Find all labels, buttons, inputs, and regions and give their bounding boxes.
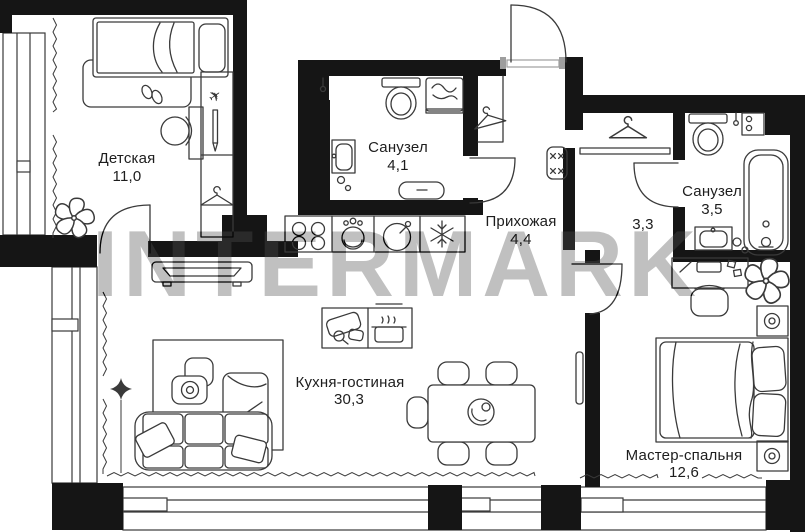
room-label-detskaya: Детская (99, 150, 156, 167)
kitchen-island (322, 304, 412, 348)
desk-chair-icon (161, 117, 192, 145)
kitchen-counter (285, 216, 465, 252)
room-area-kitchen: 30,3 (334, 391, 364, 408)
curtain-zigzag (103, 292, 107, 376)
room-area-master: 12,6 (669, 464, 699, 481)
wall-niche (329, 76, 366, 100)
plant-icon (744, 256, 792, 306)
furniture-master-spalnya (656, 256, 792, 471)
furniture-prihozhaya (470, 76, 567, 179)
armchair-icon (172, 376, 207, 404)
pillow (752, 346, 787, 392)
toy-plane-icon: ✈ (205, 85, 226, 107)
door-sanuzel-2 (634, 163, 678, 207)
floor-zigzag (107, 473, 535, 477)
toilet-icon (382, 78, 420, 119)
room-label-sanuzel-2: Санузел (682, 183, 742, 200)
dining-chair (438, 362, 469, 385)
floor-plan-svg: ✈ (0, 0, 805, 532)
floor-plan: ✈ (0, 0, 805, 532)
entrance-door (500, 5, 566, 69)
bathroom-sink-icon (332, 140, 355, 191)
bathtub-icon (744, 150, 788, 255)
slippers-icon (140, 84, 164, 105)
room-label-sanuzel-1: Санузел (368, 139, 428, 156)
faucet-icon (734, 113, 739, 125)
furniture-detskaya: ✈ (55, 18, 233, 240)
room-area-detskaya: 11,0 (113, 168, 142, 185)
double-bed-icon (656, 338, 788, 442)
pillow (752, 393, 786, 437)
room-area-sanuzel-2: 3,5 (701, 201, 722, 218)
furniture-garderobnaya (580, 117, 670, 154)
washing-machine-icon (426, 78, 463, 113)
floor-lamp-sparkle-icon (110, 378, 132, 473)
floor-zigzag (702, 475, 762, 479)
hanger-icon (610, 117, 647, 138)
plant-icon (55, 196, 98, 240)
wardrobe: ✈ (201, 72, 233, 237)
bathroom-sink-icon (695, 227, 748, 253)
curtain-zigzag (103, 399, 107, 474)
furniture-sanuzel-1 (321, 76, 464, 199)
window-left-lower (52, 267, 97, 483)
room-label-prihozhaya: Прихожая (485, 213, 556, 230)
kitchen-sink-icon (384, 222, 411, 251)
single-bed-icon (93, 18, 228, 77)
work-desk-icon (672, 258, 748, 316)
room-area-sanuzel-1: 4,1 (387, 157, 408, 174)
dining-chair (438, 442, 469, 465)
closet-front (580, 148, 670, 154)
water-heater-icon (742, 113, 764, 135)
door-detskaya (100, 205, 150, 253)
dining-chair (407, 397, 428, 428)
lounge-zone (134, 340, 283, 470)
vanity-icon (399, 182, 444, 199)
cutting-board-icon (325, 311, 363, 344)
dining-chair (486, 442, 517, 465)
hanger-icon (201, 187, 233, 205)
pencil-icon (213, 110, 218, 143)
room-label-kitchen: Кухня-гостиная (296, 374, 405, 391)
nightstand-icon (757, 441, 788, 471)
sofa-icon (134, 412, 272, 470)
curtain-zigzag (53, 135, 57, 238)
door-sanuzel-1 (470, 158, 515, 203)
tv-console-icon (152, 262, 252, 286)
window-left-upper (3, 33, 45, 235)
room-area-garderobnaya: 3,3 (632, 216, 653, 233)
door-master-spalnya (572, 264, 622, 314)
room-label-master: Мастер-спальня (626, 447, 743, 464)
dining-chair (486, 362, 517, 385)
room-area-prihozhaya: 4,4 (510, 231, 531, 248)
dishwasher-icon (342, 218, 364, 249)
radiator (576, 352, 583, 404)
desk-chair (691, 289, 728, 316)
dining-table-icon (407, 362, 535, 465)
fridge-snowflake-icon (431, 221, 453, 247)
toilet-icon (689, 114, 727, 155)
pot-icon (372, 304, 406, 342)
curtain-zigzag (53, 18, 57, 112)
nightstand-icon (757, 306, 788, 336)
